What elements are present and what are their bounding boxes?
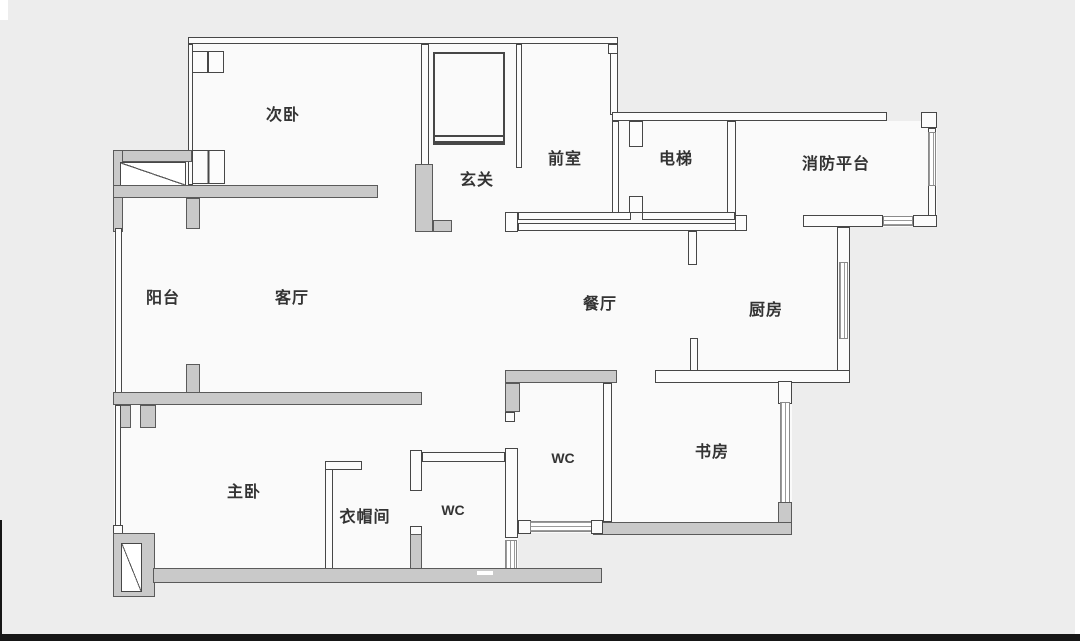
- edge-left-line: [0, 520, 2, 641]
- wall-frontroom-bottom-b: [642, 212, 735, 220]
- label-front-room: 前室: [548, 145, 582, 169]
- wall-study-left: [603, 383, 612, 522]
- floor-bottom-left: [114, 383, 518, 583]
- window-below-wc: [505, 540, 517, 569]
- window-kitchen-right: [839, 262, 848, 339]
- gray-wall-entry-foot: [433, 220, 452, 232]
- gray-pier-balcony-top: [186, 198, 200, 229]
- gray-wall-bottom: [153, 568, 602, 583]
- closet-shelf-line2: [435, 141, 503, 143]
- label-secondary-bedroom: 次卧: [266, 101, 300, 125]
- gray-wall-bedroom2-bottom: [113, 185, 378, 198]
- wall-bedroom2-right: [421, 44, 429, 166]
- wall-kitchen-bottom: [655, 370, 850, 383]
- label-master-bedroom: 主卧: [227, 478, 261, 502]
- window-study-right: [780, 402, 790, 503]
- corner-cabinet-symbol: [121, 543, 142, 592]
- gray-wall-wc-left-upper: [505, 383, 520, 412]
- wall-elevator-right: [727, 121, 736, 218]
- label-balcony: 阳台: [146, 284, 180, 308]
- wall-kitchen-top: [803, 215, 883, 227]
- window-wc-bottom: [530, 521, 592, 532]
- pier-bedroom2-lower: [192, 150, 225, 184]
- edge-right-strip: [1075, 0, 1080, 641]
- window-fireplatform-right: [928, 132, 936, 186]
- label-kitchen: 厨房: [749, 296, 783, 320]
- wall-elevator-jamb-top: [629, 121, 643, 147]
- wall-frontroom-bottom-a: [518, 212, 631, 220]
- wall-cloakroom-left: [325, 461, 333, 572]
- gray-wall-entry-L: [415, 164, 433, 232]
- wall-elevator-left: [612, 121, 619, 213]
- wall-wc-left: [505, 448, 518, 538]
- wall-frontroom-right: [610, 53, 618, 115]
- label-cloakroom: 衣帽间: [339, 503, 390, 527]
- pier-fireplatform-corner: [921, 112, 937, 128]
- wall-top: [188, 37, 618, 44]
- closet-shelf-line1: [435, 135, 503, 137]
- wall-elevator-jamb-bottom: [629, 196, 643, 213]
- wall-wc2-top: [422, 452, 505, 462]
- wall-hall-lower: [518, 223, 740, 231]
- wall-study-right-stub: [778, 381, 792, 404]
- label-fire-platform: 消防平台: [802, 150, 870, 174]
- pier-bedroom2-upper: [192, 51, 224, 73]
- gray-wall-living-master: [113, 392, 422, 405]
- gray-wall-study-bottom: [593, 522, 792, 535]
- gray-wall-wc-top: [505, 370, 617, 383]
- label-wc-small: WC: [441, 502, 464, 518]
- wall-fireplatform-bottom-corner: [913, 215, 937, 227]
- floor-plan: 次卧 玄关 前室 电梯 消防平台 阳台 客厅 餐厅 厨房 主卧 衣帽间 WC W…: [0, 0, 1080, 641]
- bay-cabinet-symbol: [120, 162, 186, 186]
- wall-entry-frontroom-divider: [516, 44, 522, 168]
- gray-wall-bay-top: [113, 150, 192, 162]
- wall-cloakroom-lip: [325, 461, 362, 470]
- gray-stub-below-b: [140, 405, 156, 428]
- wall-wc-window-cap-right: [591, 520, 603, 534]
- pier-wc-left: [505, 412, 515, 422]
- wall-dining-kitchen-stub-top: [688, 231, 697, 265]
- wall-dining-kitchen-stub-bottom: [690, 338, 698, 372]
- wall-balcony-left: [115, 228, 122, 393]
- wall-frontroom-bottom-cap: [505, 212, 518, 232]
- bottom-wall-gap: [477, 571, 493, 575]
- wall-master-left: [115, 405, 121, 534]
- wall-hall-step: [735, 215, 747, 231]
- edge-topleft-sliver: [0, 0, 8, 20]
- label-study: 书房: [695, 438, 729, 462]
- window-kitchen-top: [883, 216, 913, 226]
- edge-bottom-bar: [0, 634, 1080, 641]
- label-wc-main: WC: [551, 450, 574, 466]
- label-living-room: 客厅: [275, 284, 309, 308]
- label-dining-room: 餐厅: [583, 290, 617, 314]
- gray-pier-balcony-bottom: [186, 364, 200, 393]
- entry-closet: [433, 52, 505, 145]
- wall-elevator-top: [612, 112, 887, 121]
- pier-wc2-left: [410, 450, 422, 491]
- label-elevator: 电梯: [659, 145, 693, 169]
- label-entryway: 玄关: [460, 166, 494, 190]
